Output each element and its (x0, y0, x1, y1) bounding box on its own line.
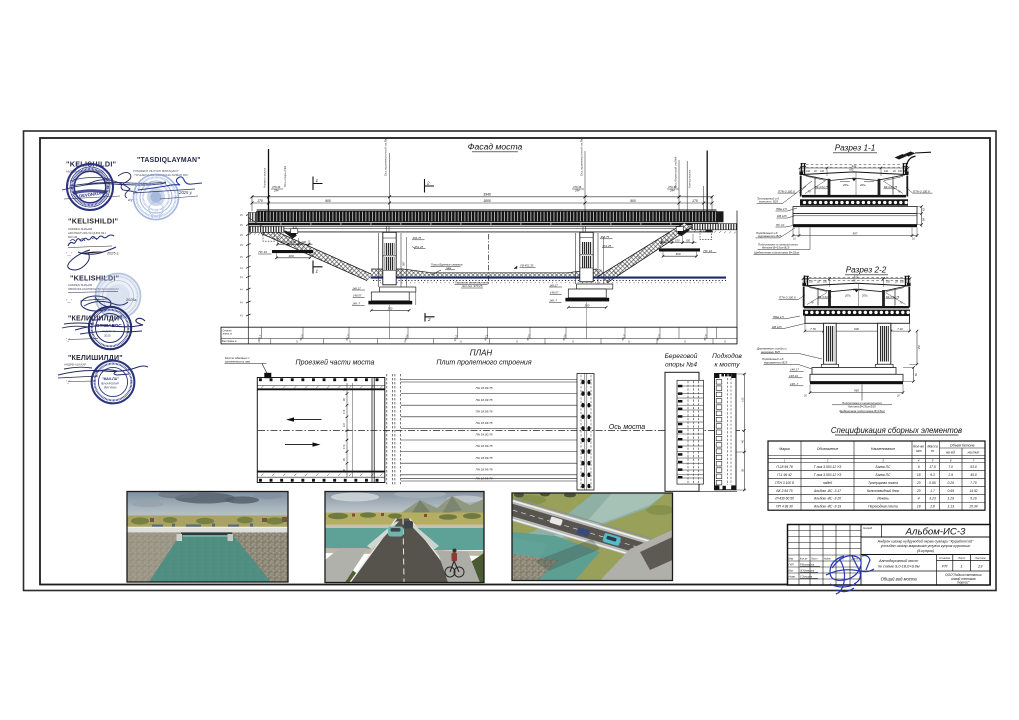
svg-text:Проезжей части моста: Проезжей части моста (296, 359, 375, 367)
svg-text:912: 912 (852, 164, 857, 168)
svg-text:Береговой: Береговой (665, 352, 698, 360)
svg-text:ПН 18.99.78: ПН 18.99.78 (476, 467, 493, 471)
svg-text:У.Зокиров: У.Зокиров (800, 575, 813, 579)
svg-text:заложенность пам: заложенность пам (224, 360, 250, 364)
svg-text:1.7: 1.7 (930, 489, 935, 493)
svg-text:Консолевидный блок: Консолевидный блок (867, 489, 900, 493)
svg-text:надпб: надпб (823, 481, 832, 485)
svg-text:960: 960 (854, 388, 859, 392)
svg-text:+80: +80 (851, 280, 856, 283)
svg-text:"_": "_" (66, 380, 70, 384)
svg-text:Обозначение: Обозначение (817, 447, 838, 451)
svg-text:НВ 125: НВ 125 (772, 325, 782, 329)
svg-text:148.07: 148.07 (550, 291, 559, 295)
svg-text:"_": "_" (66, 338, 70, 342)
svg-text:Ось промежуточной оп.№2: Ось промежуточной оп.№2 (384, 137, 388, 176)
svg-text:Переходная плита: Переходная плита (868, 505, 898, 509)
svg-text:78: 78 (811, 301, 814, 305)
svg-text:на ед.: на ед. (946, 451, 956, 455)
svg-text:456.75: 456.75 (413, 236, 422, 240)
svg-text:№док: №док (824, 557, 831, 560)
svg-text:Ось береговой оп.№4: Ось береговой оп.№4 (674, 156, 678, 188)
svg-text:мурованного В25: мурованного В25 (758, 234, 782, 238)
svg-text:БК-3 64.75: БК-3 64.75 (818, 295, 832, 299)
svg-text:НВ 125: НВ 125 (777, 214, 787, 218)
svg-text:100: 100 (809, 281, 814, 284)
svg-text:ПЛАН: ПЛАН (470, 349, 493, 358)
svg-text:2025 г.: 2025 г. (106, 252, 119, 256)
svg-text:ПН 18.99.78: ПН 18.99.78 (476, 409, 493, 413)
svg-text:173: 173 (342, 409, 346, 414)
svg-text:2: 2 (426, 181, 430, 186)
svg-text:ПС 10: ПС 10 (704, 249, 713, 253)
svg-text:100: 100 (898, 170, 903, 173)
svg-text:Стадия: Стадия (939, 556, 950, 560)
svg-text:Автодорожный мост: Автодорожный мост (878, 558, 919, 563)
svg-text:987: 987 (853, 231, 858, 235)
svg-text:Листов: Листов (974, 556, 986, 560)
svg-text:БК-3 64.75: БК-3 64.75 (884, 185, 898, 189)
svg-text:УВ 452.35: УВ 452.35 (520, 264, 534, 268)
svg-text:ПН 18.99.78: ПН 18.99.78 (476, 456, 493, 460)
svg-text:5.16: 5.16 (970, 497, 977, 501)
svg-text:Альбом-ИС-3: Альбом-ИС-3 (905, 527, 966, 538)
svg-text:78: 78 (900, 301, 903, 305)
svg-text:Тротуарная плита: Тротуарная плита (868, 481, 898, 485)
svg-text:23: 23 (977, 564, 983, 569)
svg-text:470.46: 470.46 (272, 185, 281, 189)
svg-text:"МАХ-ЛА": "МАХ-ЛА" (102, 377, 119, 381)
svg-text:0.69: 0.69 (947, 489, 954, 493)
svg-text:П-1 99 42: П-1 99 42 (777, 473, 792, 477)
svg-text:Л=430 60 50: Л=430 60 50 (774, 497, 794, 501)
svg-text:Ось опоры №1: Ось опоры №1 (283, 165, 287, 187)
svg-text:BO'LIM: BO'LIM (68, 235, 78, 239)
svg-text:Масса: Масса (927, 444, 937, 448)
svg-text:Подходов: Подходов (712, 352, 742, 360)
svg-text:20: 20 (916, 489, 921, 493)
svg-text:2025 у.: 2025 у. (178, 190, 192, 195)
svg-text:Марка: Марка (779, 447, 790, 451)
svg-text:Разрез 1-1: Разрез 1-1 (835, 144, 876, 153)
svg-text:100: 100 (806, 170, 811, 173)
svg-text:3940: 3940 (483, 193, 491, 197)
svg-text:20‰: 20‰ (844, 294, 851, 298)
svg-text:Объем бетона: Объем бетона (950, 443, 975, 447)
svg-text:148.-7: 148.-7 (352, 302, 360, 306)
svg-text:Исп.: Исп. (789, 569, 795, 573)
svg-text:900: 900 (325, 199, 331, 203)
svg-text:Т пкж 3.503-12 УЗ: Т пкж 3.503-12 УЗ (814, 473, 842, 477)
svg-text:т: т (931, 449, 934, 453)
svg-text:ПП 4 99 30: ПП 4 99 30 (776, 505, 793, 509)
svg-text:доп скв. 970.25: доп скв. 970.25 (462, 284, 483, 288)
svg-text:45.0: 45.0 (970, 473, 977, 477)
svg-text:+80: +80 (849, 169, 854, 172)
svg-text:1.13: 1.13 (947, 505, 954, 509)
svg-text:ПТН 3 100 8: ПТН 3 100 8 (775, 481, 794, 485)
svg-text:456.75: 456.75 (601, 235, 610, 239)
svg-text:18: 18 (917, 473, 921, 477)
svg-text:148.17: 148.17 (549, 283, 558, 287)
svg-text:ПН 18.00.78: ПН 18.00.78 (476, 433, 493, 437)
svg-text:ПБм 2.5: ПБм 2.5 (773, 315, 784, 319)
svg-text:П-18 99 78: П-18 99 78 (776, 465, 792, 469)
svg-text:ПН 18.99.78: ПН 18.99.78 (476, 444, 493, 448)
svg-text:Спецификация сборных элементов: Спецификация сборных элементов (831, 426, 962, 435)
svg-text:Отметки: Отметки (223, 331, 233, 333)
svg-text:451.25: 451.25 (603, 244, 612, 248)
svg-text:земли, м: земли, м (223, 334, 233, 336)
svg-text:100: 100 (823, 281, 828, 284)
svg-text:ПТН-3 100.8: ПТН-3 100.8 (778, 189, 795, 193)
svg-text:170: 170 (257, 199, 263, 203)
svg-text:Р.Махмудов: Р.Махмудов (800, 563, 815, 567)
svg-text:ПН 18.99.78: ПН 18.99.78 (476, 477, 493, 481)
svg-text:148.-7: 148.-7 (549, 299, 557, 303)
svg-text:к мосту: к мосту (714, 362, 740, 369)
svg-text:+22: +22 (740, 397, 744, 402)
svg-text:БК-3 64 75: БК-3 64 75 (776, 489, 792, 493)
svg-text:Щебеночная подготовка В=15см: Щебеночная подготовка В=15см (840, 409, 885, 413)
svg-text:127: 127 (342, 422, 346, 427)
svg-text:2025: 2025 (104, 334, 111, 338)
svg-text:БК-3 64.75: БК-3 64.75 (815, 185, 829, 189)
svg-text:Разрез 2-2: Разрез 2-2 (846, 266, 887, 275)
svg-text:Щебеночная подготовка В=15см: Щебеночная подготовка В=15см (754, 251, 799, 255)
svg-text:мурованного В25: мурованного В25 (764, 361, 788, 365)
svg-text:451.25: 451.25 (415, 245, 424, 249)
svg-text:ГИП: ГИП (789, 563, 794, 567)
svg-text:63.0: 63.0 (970, 465, 977, 469)
svg-text:ПН 18.99.78: ПН 18.99.78 (476, 386, 493, 390)
svg-text:100: 100 (301, 240, 306, 244)
svg-text:Общий вид моста: Общий вид моста (881, 577, 918, 582)
svg-text:г/у: г/у (128, 198, 133, 202)
svg-text:6.3: 6.3 (930, 473, 935, 477)
svg-text:20.34: 20.34 (968, 505, 977, 509)
svg-text:18: 18 (917, 505, 921, 509)
svg-text:Расстояние,м: Расстояние,м (222, 341, 237, 343)
svg-text:100: 100 (884, 170, 889, 173)
svg-text:1: 1 (316, 269, 319, 274)
svg-text:Ось моста: Ось моста (609, 424, 646, 431)
svg-text:900: 900 (630, 199, 636, 203)
svg-text:Балка ПС: Балка ПС (876, 473, 891, 477)
svg-text:Плит пролетного строения: Плит пролетного строения (436, 360, 531, 367)
svg-text:0.26: 0.26 (947, 481, 954, 485)
svg-text:ПС 10: ПС 10 (259, 250, 268, 254)
svg-text:по схеме 9,0-18,0+9,0м: по схеме 9,0-18,0+9,0м (878, 563, 920, 568)
svg-text:ПБм 2.5: ПБм 2.5 (776, 207, 787, 211)
svg-text:7.70: 7.70 (970, 481, 977, 485)
svg-text:(9-куприк): (9-куприк) (917, 549, 935, 553)
svg-text:Т пкж 3.503-12 УЗ: Т пкж 3.503-12 УЗ (814, 465, 842, 469)
svg-text:148.10: 148.10 (789, 374, 798, 378)
svg-text:148.17: 148.17 (352, 286, 361, 290)
svg-text:Лежень: Лежень (876, 497, 889, 501)
svg-text:ПТН-3 100.8: ПТН-3 100.8 (913, 189, 930, 193)
svg-text:300: 300 (585, 303, 590, 307)
svg-text:9: 9 (918, 465, 920, 469)
svg-text:Кол.уч: Кол.уч (800, 557, 808, 560)
svg-text:Альбом -ИС -3-19: Альбом -ИС -3-19 (813, 505, 841, 509)
svg-text:2: 2 (427, 317, 431, 322)
svg-text:бетона В=15см В15: бетона В=15см В15 (762, 246, 790, 250)
svg-text:"__": "__" (66, 252, 73, 256)
svg-text:297: 297 (917, 344, 921, 349)
svg-text:7.70: 7.70 (810, 327, 816, 331)
svg-text:2025г.: 2025г. (125, 298, 137, 302)
svg-text:Альбом -ИС -3-20: Альбом -ИС -3-20 (813, 497, 841, 501)
svg-text:Фасад моста: Фасад моста (468, 142, 523, 152)
svg-text:7.0: 7.0 (948, 465, 953, 469)
svg-text:"__": "__" (66, 299, 73, 303)
svg-text:17.5: 17.5 (929, 465, 936, 469)
svg-text:Наименование: Наименование (871, 447, 895, 451)
svg-text:Андрен шахар кудрувобод оқова: Андрен шахар кудрувобод оқова сувлари "Қ… (877, 540, 974, 544)
svg-text:1: 1 (960, 564, 962, 569)
svg-text:100: 100 (280, 240, 285, 244)
svg-text:148.-7: 148.-7 (790, 382, 799, 386)
svg-text:монолит. В25: монолит. В25 (759, 200, 778, 204)
svg-text:300: 300 (288, 254, 293, 258)
svg-text:20‰: 20‰ (842, 183, 849, 187)
svg-text:100: 100 (900, 281, 905, 284)
svg-text:БК-3 64.75: БК-3 64.75 (886, 295, 900, 299)
svg-text:78: 78 (808, 190, 811, 194)
svg-text:ПТН-3 100.8: ПТН-3 100.8 (779, 296, 796, 300)
svg-text:20‰: 20‰ (861, 294, 868, 298)
svg-text:1.29: 1.29 (947, 497, 954, 501)
svg-text:Изм: Изм (789, 557, 794, 560)
svg-text:ЙИГИНИ: ЙИГИНИ (104, 386, 116, 390)
svg-text:600: 600 (854, 327, 859, 331)
svg-text:Лист: Лист (810, 557, 817, 560)
svg-text:300: 300 (388, 306, 393, 310)
svg-text:100: 100 (820, 170, 825, 173)
svg-text:100: 100 (664, 239, 669, 243)
svg-text:100: 100 (291, 240, 296, 244)
svg-text:470.46: 470.46 (668, 185, 677, 189)
svg-text:Норм.: Норм. (789, 575, 797, 579)
svg-text:40: 40 (740, 440, 744, 443)
svg-text:Кол-во: Кол-во (913, 444, 924, 448)
svg-text:78: 78 (898, 190, 901, 194)
svg-text:1: 1 (316, 178, 319, 183)
svg-text:170: 170 (692, 199, 698, 203)
svg-text:Альбом -ИС -3-17: Альбом -ИС -3-17 (813, 489, 841, 493)
svg-text:148.17: 148.17 (790, 368, 799, 372)
svg-text:2.8: 2.8 (929, 505, 935, 509)
svg-text:Ось промежуточной оп.№3: Ось промежуточной оп.№3 (579, 137, 583, 176)
svg-text:должнб: должнб (863, 526, 872, 530)
svg-text:ПН 18.99.78: ПН 18.99.78 (476, 398, 493, 402)
svg-text:20: 20 (916, 481, 921, 485)
svg-text:шт: шт (916, 449, 922, 453)
svg-text:"KELISHILDI": "KELISHILDI" (68, 217, 118, 226)
svg-text:148.07: 148.07 (353, 294, 362, 298)
svg-text:на тип: на тип (968, 451, 980, 455)
svg-text:Начало моста: Начало моста (263, 168, 267, 188)
svg-text:470.46: 470.46 (573, 185, 582, 189)
svg-text:173: 173 (342, 444, 346, 449)
svg-text:РП: РП (942, 564, 948, 569)
svg-text:1800: 1800 (483, 199, 491, 203)
svg-text:опоры №4: опоры №4 (665, 362, 697, 369)
svg-text:2.9: 2.9 (947, 473, 953, 477)
svg-text:100: 100 (685, 239, 690, 243)
svg-text:ПС 10: ПС 10 (776, 223, 785, 227)
svg-text:38: 38 (740, 469, 744, 472)
svg-text:20‰: 20‰ (859, 183, 866, 187)
svg-text:АНДРЕН ШАХАР: АНДРЕН ШАХАР (64, 363, 86, 367)
svg-text:ПН 18.99.78: ПН 18.99.78 (476, 421, 493, 425)
svg-text:устидан шохар марказига утувчи: устидан шохар марказига утувчи куприк ку… (880, 544, 971, 548)
svg-text:0.65: 0.65 (929, 481, 936, 485)
svg-text:3.23: 3.23 (929, 497, 936, 501)
svg-text:100: 100 (886, 281, 891, 284)
svg-text:2: 2 (826, 459, 829, 463)
svg-text:300: 300 (675, 252, 680, 256)
svg-text:587: 587 (402, 261, 406, 266)
svg-text:100: 100 (675, 239, 680, 243)
svg-text:анкерами В25: анкерами В25 (761, 350, 780, 354)
svg-text:бюроси": бюроси" (957, 581, 970, 585)
svg-text:7.10: 7.10 (897, 327, 903, 331)
svg-text:14.92: 14.92 (969, 489, 977, 493)
svg-text:4: 4 (918, 497, 920, 501)
svg-text:Ж.Мамиров: Ж.Мамиров (799, 569, 815, 573)
svg-text:Конец моста: Конец моста (687, 170, 691, 188)
svg-text:"TASDIQLAYMAN": "TASDIQLAYMAN" (137, 157, 201, 164)
svg-text:Лист: Лист (957, 556, 966, 560)
svg-text:Балка ПС: Балка ПС (876, 465, 891, 469)
